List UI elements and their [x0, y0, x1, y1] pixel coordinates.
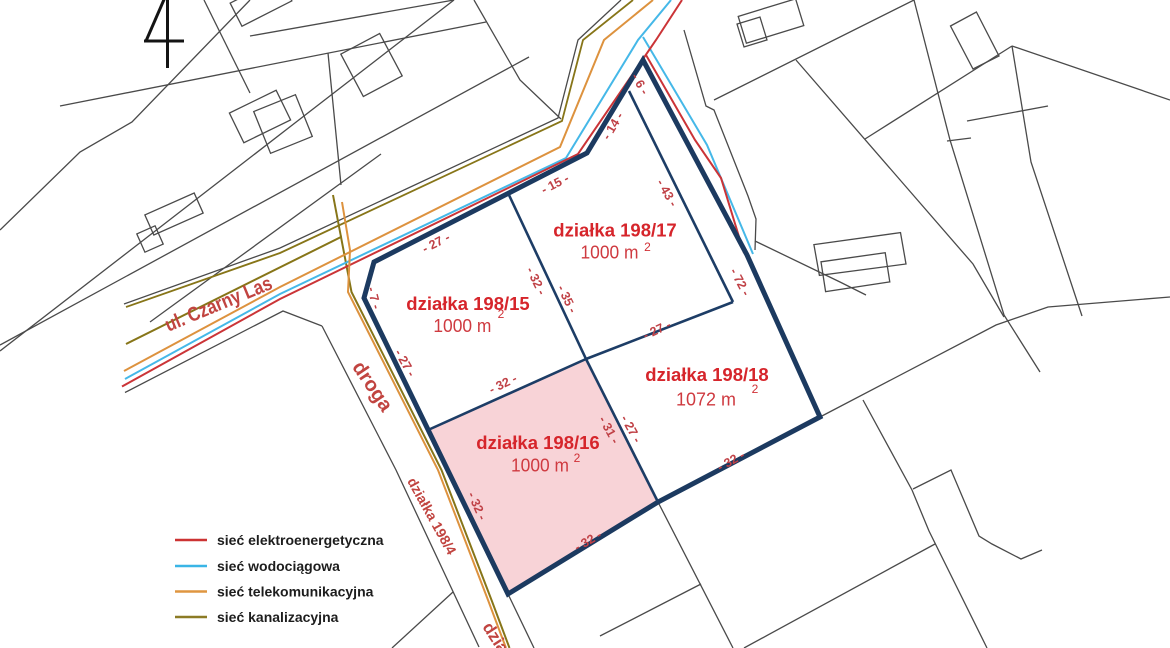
svg-text:1000 m: 1000 m — [581, 243, 639, 263]
svg-text:działka 198/17: działka 198/17 — [553, 220, 676, 241]
svg-text:sieć kanalizacyjna: sieć kanalizacyjna — [217, 609, 339, 625]
svg-text:sieć elektroenergetyczna: sieć elektroenergetyczna — [217, 532, 384, 548]
svg-text:2: 2 — [498, 307, 505, 321]
svg-text:działka 198/18: działka 198/18 — [645, 364, 768, 385]
svg-text:sieć wodociągowa: sieć wodociągowa — [217, 558, 340, 574]
svg-text:działka 198/16: działka 198/16 — [476, 432, 599, 453]
svg-text:sieć telekomunikacyjna: sieć telekomunikacyjna — [217, 584, 374, 600]
svg-text:2: 2 — [752, 382, 759, 396]
svg-text:1072 m: 1072 m — [676, 390, 736, 410]
svg-text:1000 m: 1000 m — [511, 456, 569, 476]
svg-text:działka 198/15: działka 198/15 — [406, 293, 529, 314]
svg-text:2: 2 — [574, 451, 581, 465]
svg-text:2: 2 — [644, 240, 651, 254]
svg-text:1000 m: 1000 m — [433, 316, 491, 336]
